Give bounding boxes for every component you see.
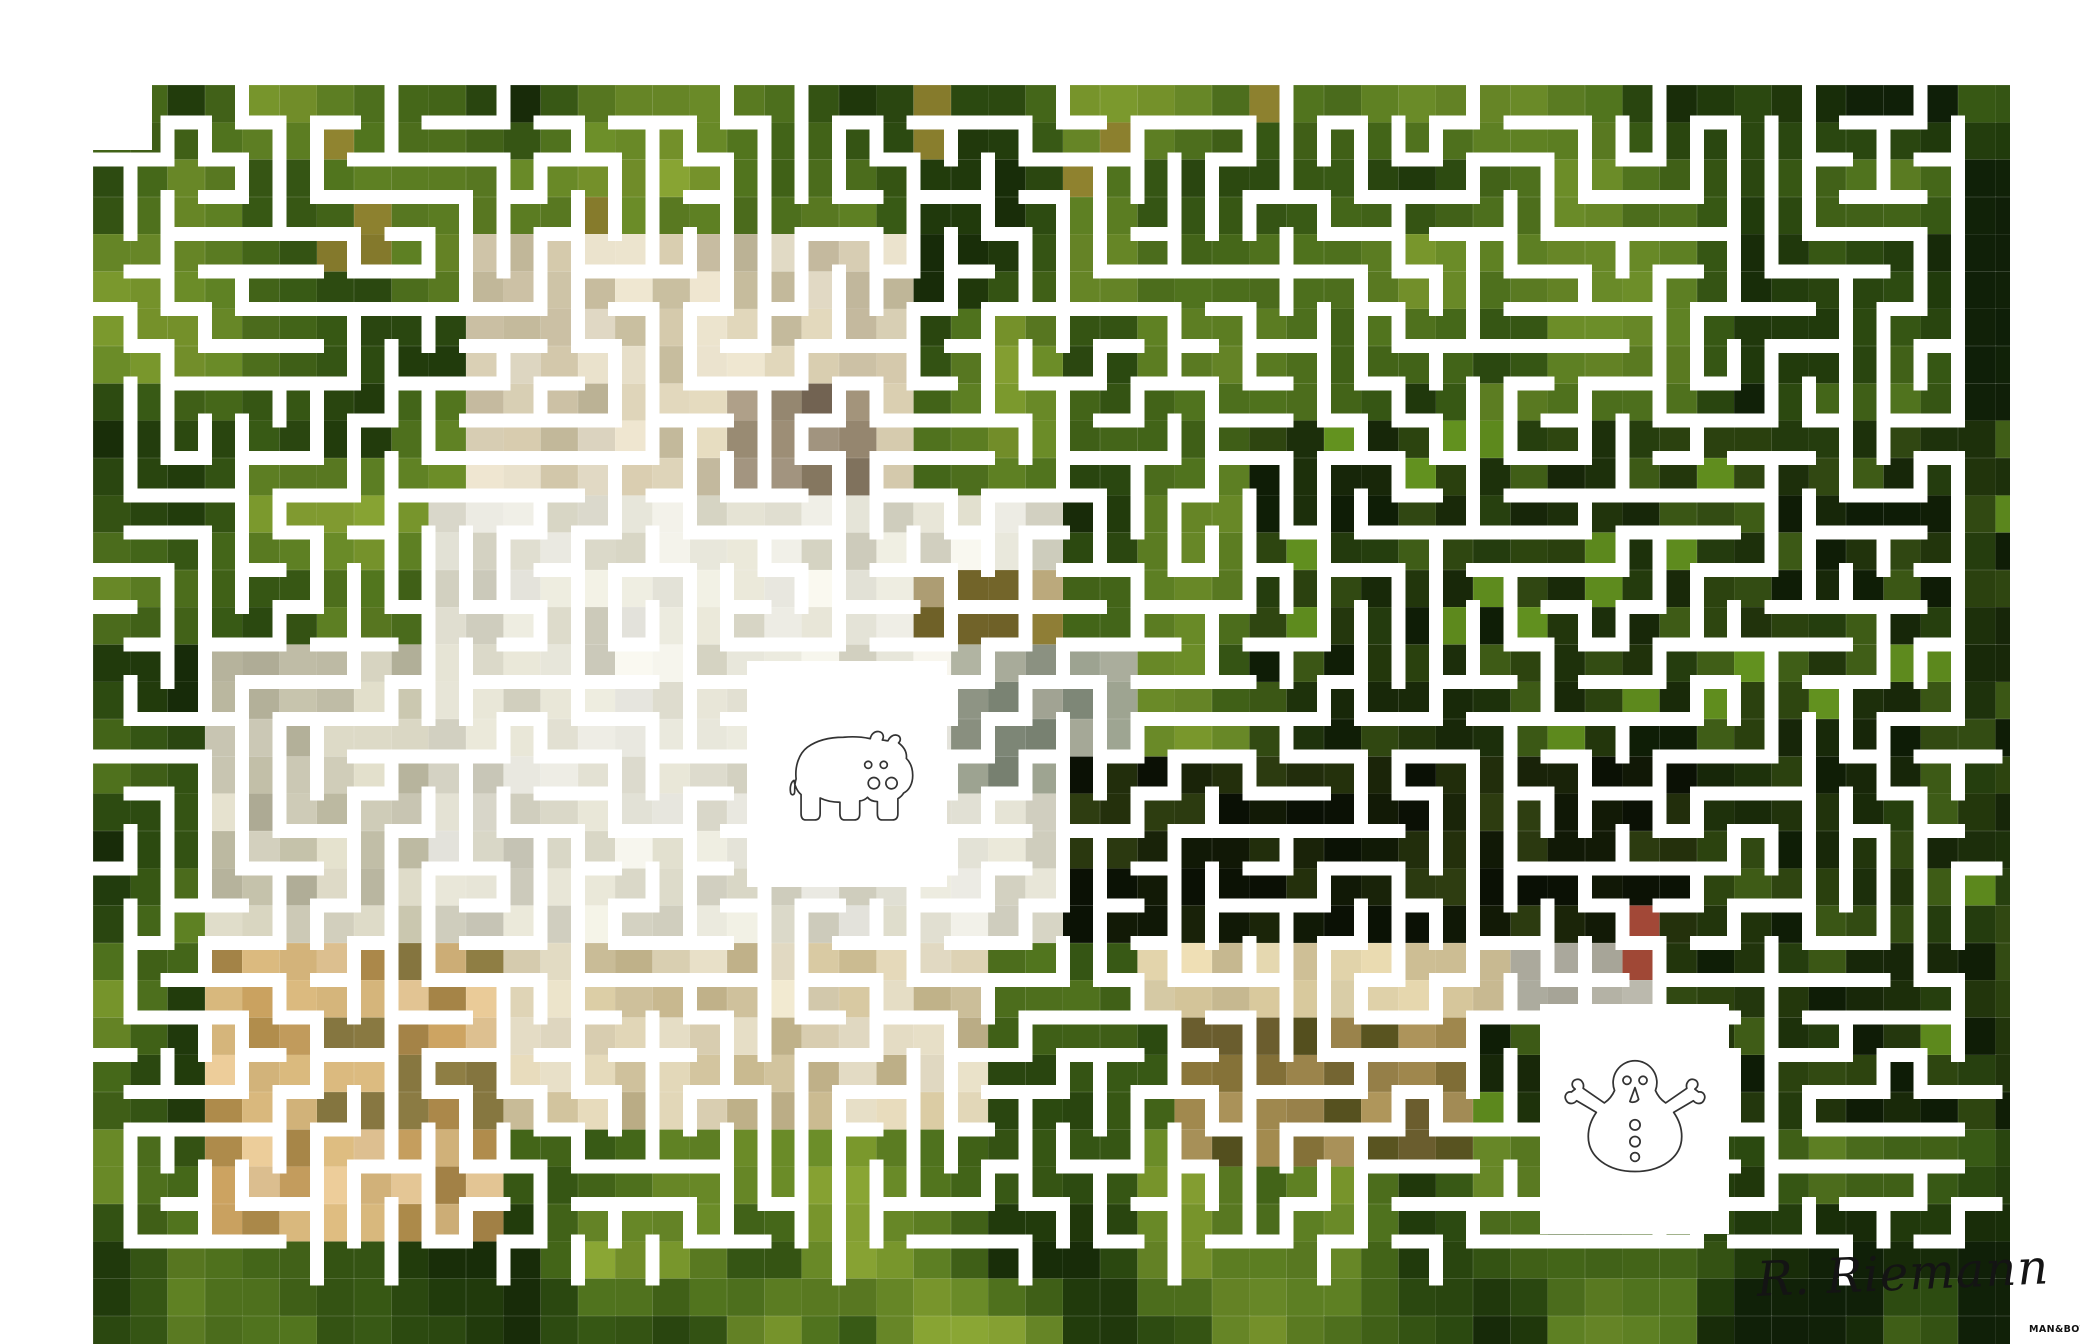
start-box (747, 661, 947, 887)
end-box (1540, 1004, 1729, 1234)
hippo-icon (775, 721, 919, 827)
maze-photo-mosaic (0, 0, 2080, 1344)
watermark: MAN&BOT (2029, 1324, 2080, 1335)
snowman-icon (1562, 1043, 1708, 1195)
maze-poster: R. Riemann MAN&BOT (0, 0, 2080, 1344)
